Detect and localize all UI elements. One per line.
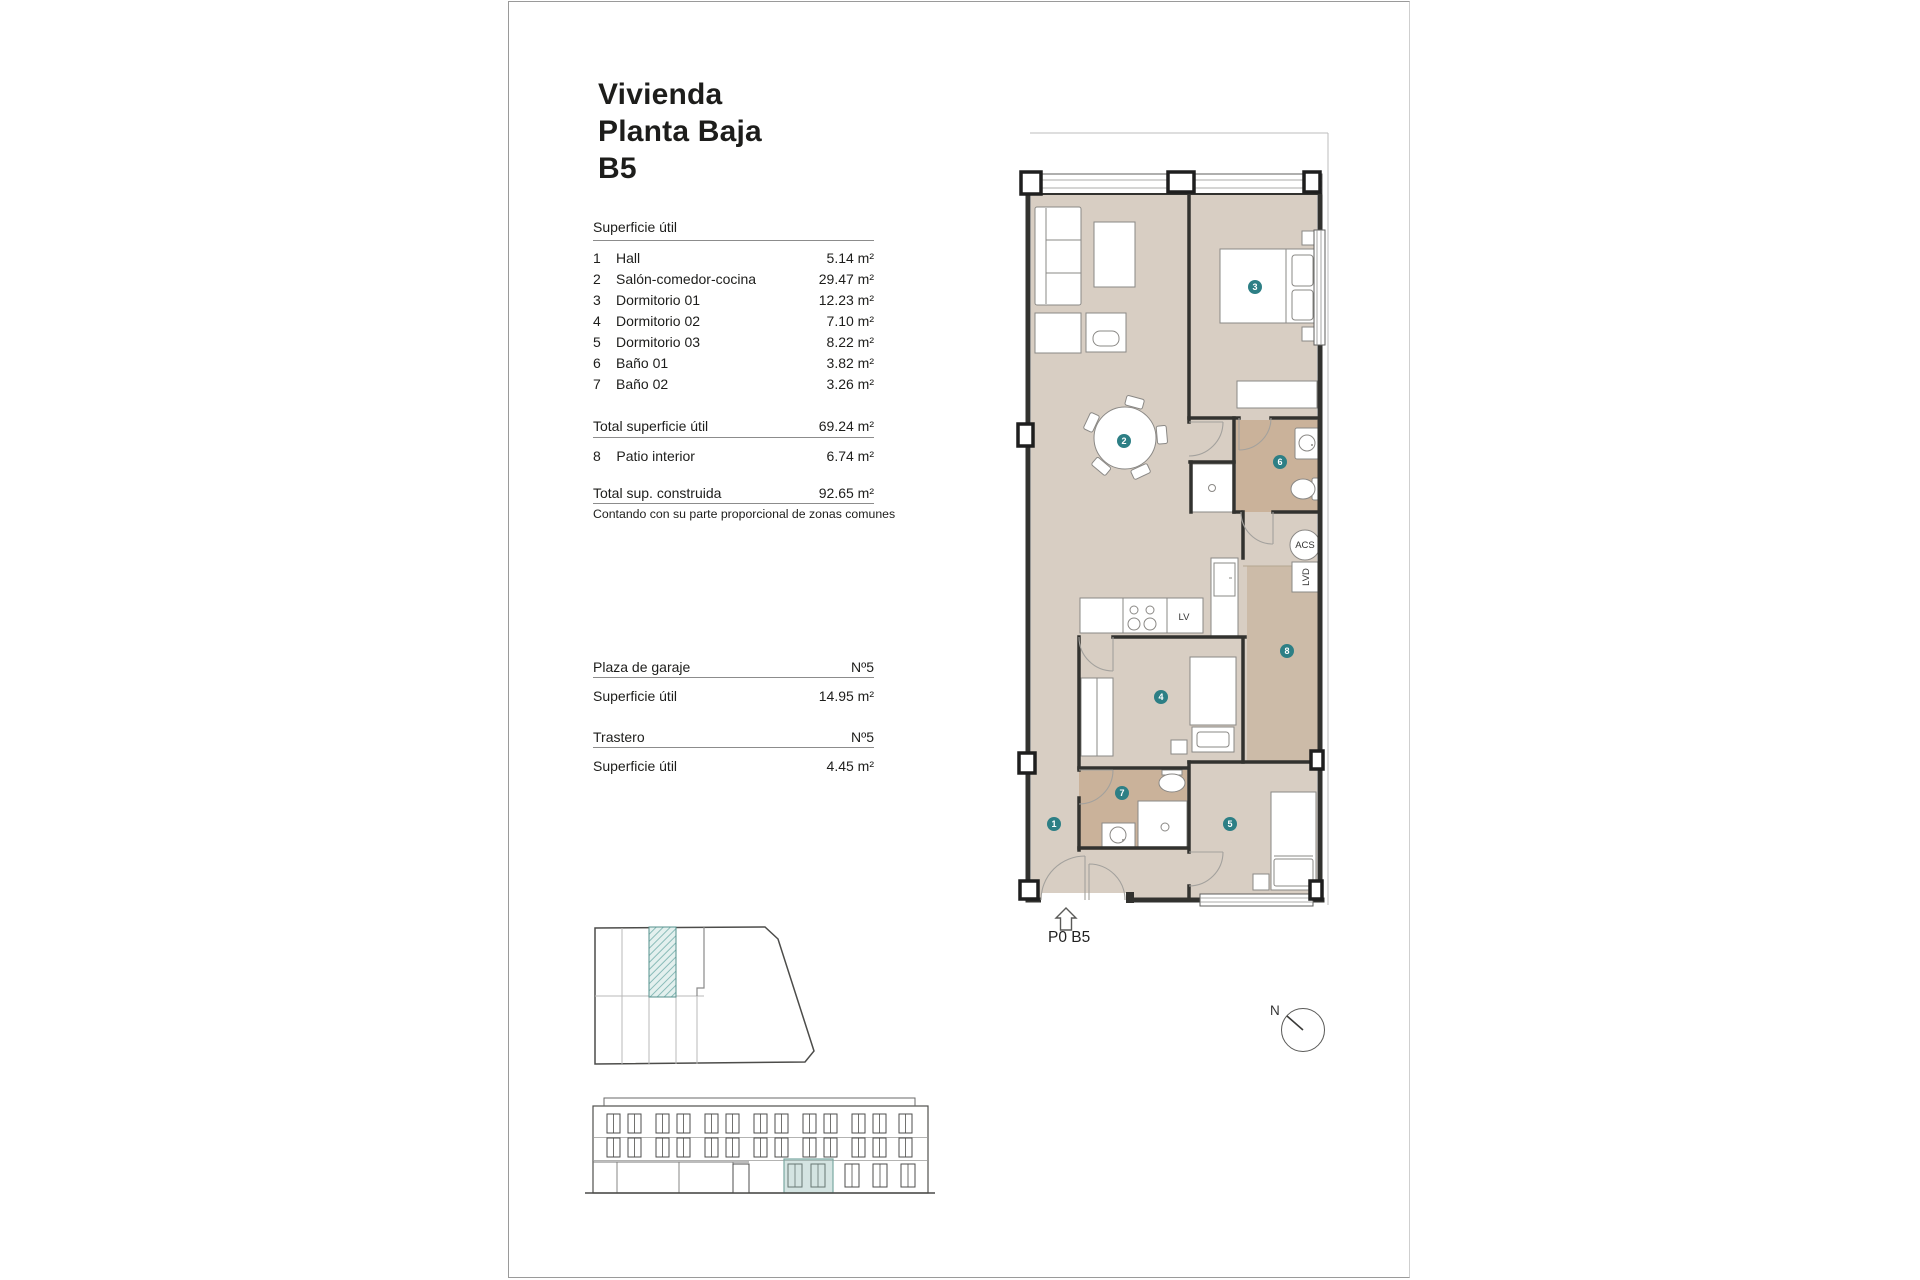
building-elevation — [583, 1092, 938, 1222]
svg-text:2: 2 — [1121, 436, 1126, 446]
svg-text:5: 5 — [1227, 819, 1232, 829]
ottoman — [1086, 313, 1126, 352]
side-table — [1171, 740, 1187, 754]
window-right — [1314, 230, 1325, 345]
fridge-cabinet — [1211, 558, 1238, 638]
patio-floor — [1247, 566, 1318, 762]
table-row: 7Baño 023.26 m² — [593, 376, 874, 397]
kitchen-counter: LV — [1080, 598, 1203, 633]
divider — [593, 503, 874, 504]
north-arrow: N — [1262, 995, 1347, 1070]
window-bottom — [1200, 894, 1313, 906]
toilet — [1291, 478, 1319, 500]
table-row: 6Baño 013.82 m² — [593, 355, 874, 376]
total-useful-row: Total superficie útil 69.24 m² — [593, 418, 874, 434]
washbasin — [1102, 823, 1135, 848]
total-built-row: Total sup. construida 92.65 m² — [593, 485, 874, 501]
table-row: 1Hall5.14 m² — [593, 250, 874, 271]
table-row: 2Salón-comedor-cocina29.47 m² — [593, 271, 874, 292]
title-line-3: B5 — [598, 150, 762, 187]
surface-table: 1Hall5.14 m² 2Salón-comedor-cocina29.47 … — [593, 250, 874, 397]
floor-plan: LV ACS LVD — [1015, 130, 1355, 965]
svg-text:3: 3 — [1252, 282, 1257, 292]
washbasin — [1295, 428, 1319, 459]
patio-row: 8 Patio interior 6.74 m² — [593, 448, 874, 464]
shower — [1138, 801, 1187, 847]
dishwasher-label: LV — [1179, 612, 1191, 623]
svg-text:7: 7 — [1119, 788, 1124, 798]
table-row: 3Dormitorio 0112.23 m² — [593, 292, 874, 313]
single-bed — [1271, 792, 1316, 890]
toilet — [1159, 770, 1185, 792]
shower — [1192, 464, 1233, 512]
svg-text:ACS: ACS — [1295, 540, 1315, 551]
title-block: Vivienda Planta Baja B5 — [598, 76, 762, 187]
title-line-1: Vivienda — [598, 76, 762, 113]
nightstand — [1253, 874, 1269, 890]
highlighted-unit-elevation — [784, 1159, 833, 1193]
north-label: N — [1270, 1003, 1280, 1018]
sofa — [1035, 207, 1081, 305]
surface-table-heading: Superficie útil — [593, 219, 874, 235]
svg-text:8: 8 — [1284, 646, 1289, 656]
svg-text:6: 6 — [1277, 457, 1282, 467]
storage-row: TrasteroNº5 — [593, 729, 874, 745]
site-key-plan — [590, 922, 825, 1072]
double-bed — [1220, 249, 1317, 323]
entry-arrow-icon — [1056, 908, 1076, 930]
title-line-2: Planta Baja — [598, 113, 762, 150]
divider — [593, 240, 874, 241]
divider — [593, 747, 874, 748]
table-row: 4Dormitorio 027.10 m² — [593, 313, 874, 334]
garage-row: Plaza de garajeNº5 — [593, 659, 874, 675]
highlighted-unit — [649, 927, 676, 997]
coffee-table — [1094, 222, 1135, 287]
single-bed — [1190, 657, 1236, 752]
armchair — [1035, 313, 1081, 353]
svg-text:LVD: LVD — [1301, 568, 1312, 586]
divider — [593, 437, 874, 438]
sideboard — [1237, 381, 1317, 408]
svg-text:1: 1 — [1051, 819, 1056, 829]
water-heater: ACS — [1290, 530, 1320, 560]
garage-area-row: Superficie útil14.95 m² — [593, 688, 874, 704]
plan-floor-label: P0 B5 — [1048, 929, 1090, 946]
storage-area-row: Superficie útil4.45 m² — [593, 758, 874, 774]
divider — [593, 677, 874, 678]
table-row: 5Dormitorio 038.22 m² — [593, 334, 874, 355]
svg-text:4: 4 — [1158, 692, 1163, 702]
wardrobe — [1081, 678, 1113, 756]
washer-dryer: LVD — [1292, 562, 1320, 592]
common-zones-note: Contando con su parte proporcional de zo… — [593, 507, 895, 521]
